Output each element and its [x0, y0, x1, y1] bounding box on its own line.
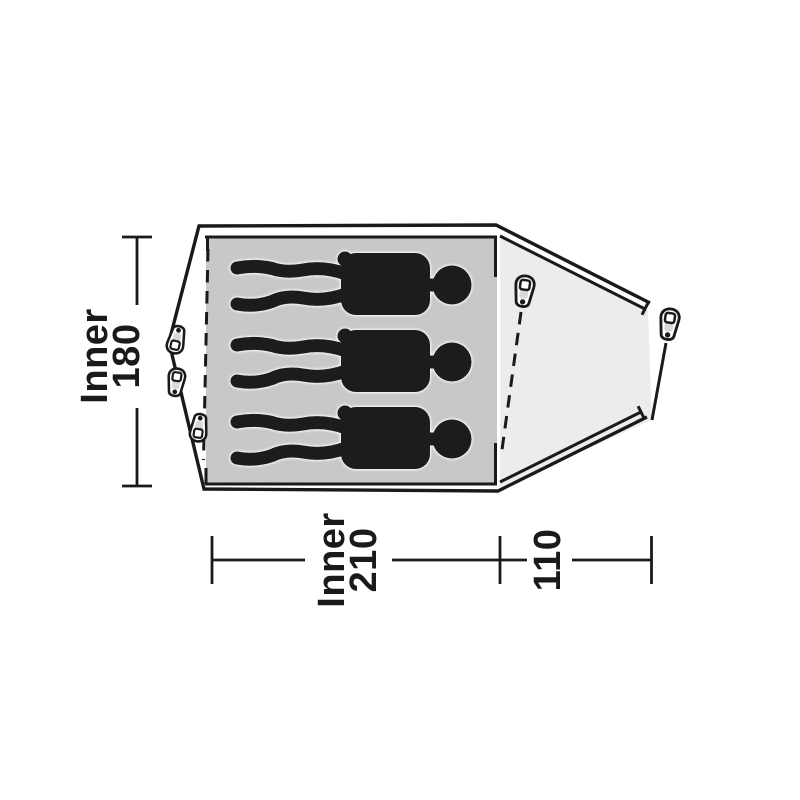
vestibule-area	[500, 234, 652, 487]
porch-length-label: 110	[532, 529, 564, 592]
peg-icon	[166, 368, 186, 398]
peg-icon	[189, 413, 209, 443]
inner-length-label: Inner 210	[316, 512, 380, 607]
inner-depth-label: Inner 180	[79, 308, 143, 403]
porch-length-label-value: 110	[532, 529, 564, 592]
peg-icon	[165, 324, 187, 354]
dimension-bottom-lines	[212, 536, 652, 584]
peg-icon	[658, 308, 680, 341]
guy-line	[652, 343, 666, 420]
tent-floorplan-diagram: Inner 180 Inner 210 110	[0, 0, 800, 800]
